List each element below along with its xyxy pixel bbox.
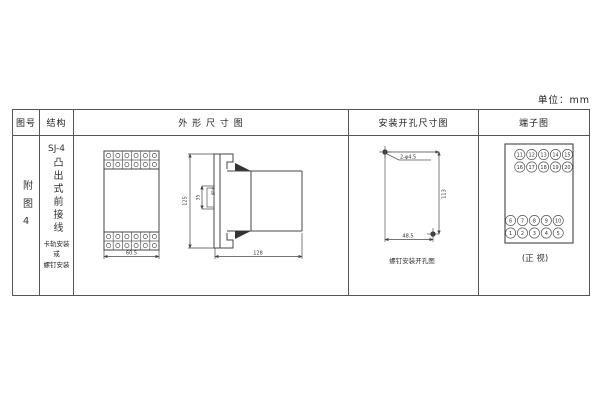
terminal-7: 7 bbox=[521, 218, 524, 224]
structure-type-label: 凸出式前接线 bbox=[49, 157, 64, 235]
terminal-15: 15 bbox=[564, 152, 570, 158]
terminal-row-6-10: 6 7 8 9 10 bbox=[506, 215, 564, 225]
header-outline-dims: 外 形 尺 寸 图 bbox=[74, 110, 349, 135]
header-fig-no: 图号 bbox=[13, 110, 40, 135]
terminal-6: 6 bbox=[509, 218, 512, 224]
terminal-13: 13 bbox=[540, 152, 546, 158]
mount-note: 卡轨安装 或 螺钉安装 bbox=[44, 239, 70, 270]
mount-note-line-1: 卡轨安装 bbox=[44, 239, 70, 249]
terminal-17: 17 bbox=[529, 165, 535, 171]
terminal-diagram-svg: 11 12 13 14 15 16 17 18 19 20 6 bbox=[479, 136, 589, 295]
install-width-dim: 48.5 bbox=[402, 234, 413, 240]
terminal-16: 16 bbox=[517, 165, 523, 171]
rail-width-dim: 35 bbox=[196, 195, 202, 201]
terminal-9: 9 bbox=[545, 218, 548, 224]
terminal-10: 10 bbox=[555, 218, 561, 224]
terminal-11: 11 bbox=[517, 152, 523, 158]
unit-label: 单位：mm bbox=[538, 92, 590, 106]
front-view: 60.5 bbox=[104, 151, 159, 259]
cell-fig-no: 附图4 bbox=[13, 136, 40, 295]
cell-terminal-diagram: 11 12 13 14 15 16 17 18 19 20 6 bbox=[479, 136, 589, 295]
table-header-row: 图号 结构 外 形 尺 寸 图 安装开孔尺寸图 端子图 bbox=[13, 110, 589, 136]
mount-note-line-3: 螺钉安装 bbox=[44, 260, 70, 270]
table-body-row: 附图4 SJ-4 凸出式前接线 卡轨安装 或 螺钉安装 bbox=[13, 136, 589, 295]
drill-hole-bottom-right bbox=[427, 228, 439, 242]
terminal-8: 8 bbox=[533, 218, 536, 224]
front-width-dim: 60.5 bbox=[126, 251, 137, 257]
cell-outline-drawing: 60.5 125 bbox=[74, 136, 349, 295]
datasheet-page: 单位：mm 图号 结构 外 形 尺 寸 图 安装开孔尺寸图 端子图 附图4 SJ… bbox=[0, 0, 600, 400]
terminal-caption: (正 视) bbox=[522, 253, 548, 264]
terminal-row-1-5: 1 2 3 4 5 bbox=[506, 228, 564, 238]
spec-table: 图号 结构 外 形 尺 寸 图 安装开孔尺寸图 端子图 附图4 SJ-4 凸出式… bbox=[12, 109, 590, 296]
side-depth-dim: 128 bbox=[253, 251, 263, 257]
install-caption: 螺钉安装开孔图 bbox=[389, 256, 435, 265]
terminal-18: 18 bbox=[540, 165, 546, 171]
rail-slot-label: 卡轨 bbox=[205, 187, 215, 195]
install-holes-svg: 2-φ4.5 113 48.5 螺钉安装开孔图 bbox=[349, 136, 477, 295]
terminal-14: 14 bbox=[552, 152, 558, 158]
mount-note-line-2: 或 bbox=[44, 249, 70, 259]
terminal-2: 2 bbox=[521, 231, 524, 237]
terminal-20: 20 bbox=[564, 165, 570, 171]
header-install-holes: 安装开孔尺寸图 bbox=[349, 110, 479, 135]
terminal-12: 12 bbox=[529, 152, 535, 158]
terminal-1: 1 bbox=[509, 231, 512, 237]
cell-install-holes: 2-φ4.5 113 48.5 螺钉安装开孔图 bbox=[349, 136, 479, 295]
side-view: 125 bbox=[183, 154, 303, 259]
outline-drawing-svg: 60.5 125 bbox=[74, 136, 347, 295]
terminal-4: 4 bbox=[545, 231, 548, 237]
model-label: SJ-4 bbox=[48, 144, 65, 154]
terminal-row-16-20: 16 17 18 19 20 bbox=[515, 162, 573, 172]
cell-structure: SJ-4 凸出式前接线 卡轨安装 或 螺钉安装 bbox=[40, 136, 74, 295]
header-terminal-diagram: 端子图 bbox=[479, 110, 589, 135]
terminal-row-11-15: 11 12 13 14 15 bbox=[515, 149, 573, 159]
install-height-dim: 113 bbox=[442, 189, 448, 199]
side-height-dim: 125 bbox=[183, 196, 189, 206]
terminal-19: 19 bbox=[552, 165, 558, 171]
terminal-5: 5 bbox=[557, 231, 560, 237]
terminal-3: 3 bbox=[533, 231, 536, 237]
figure-number: 附图4 bbox=[19, 180, 34, 235]
holes-spec-label: 2-φ4.5 bbox=[400, 155, 416, 161]
header-structure: 结构 bbox=[40, 110, 74, 135]
